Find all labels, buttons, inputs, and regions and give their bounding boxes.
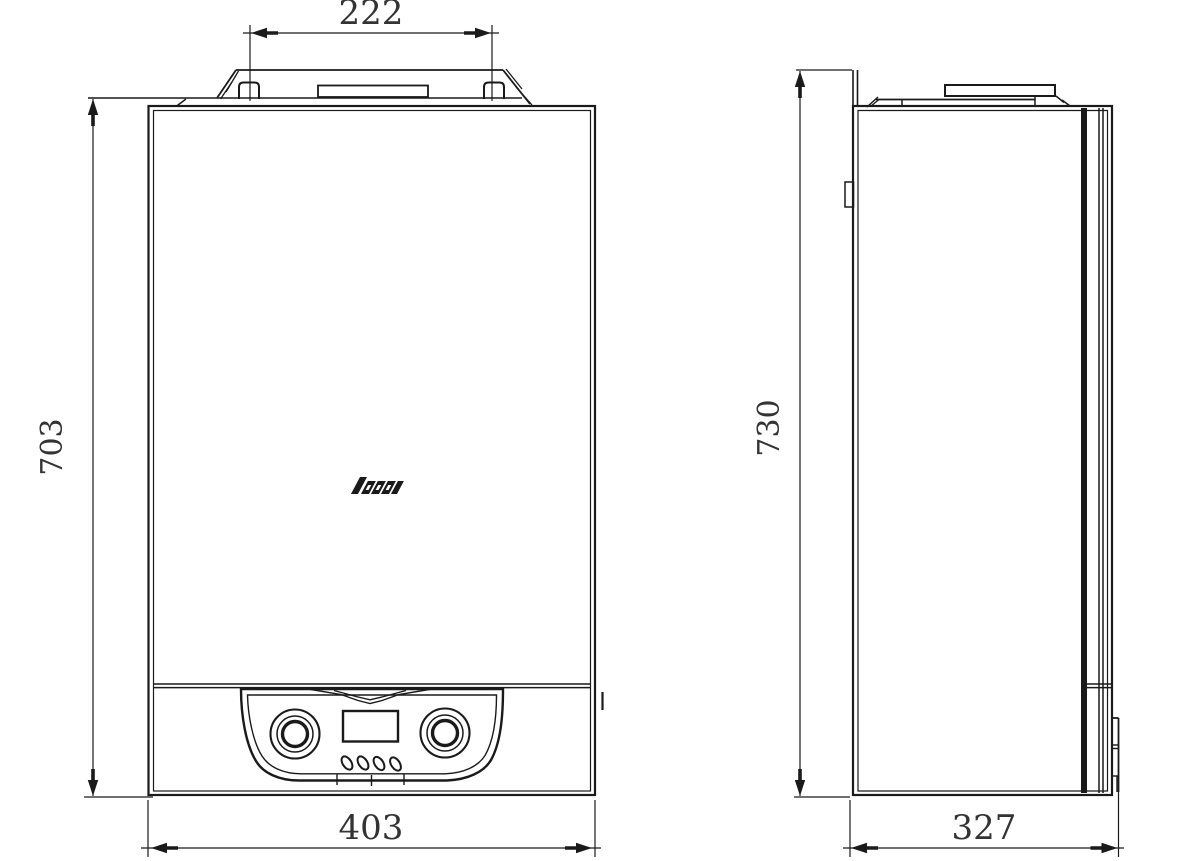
dim-label-side-height: 730 bbox=[752, 399, 787, 456]
front-body bbox=[149, 99, 603, 795]
display-window bbox=[343, 711, 398, 742]
side-top-cap bbox=[867, 85, 1070, 107]
panel-buttons[interactable] bbox=[339, 754, 403, 772]
boiler-dimension-drawing: 222 703 403 730 327 bbox=[0, 0, 1200, 861]
dim-side-depth: 327 bbox=[843, 792, 1124, 857]
dim-side-height: 730 bbox=[752, 70, 852, 797]
dim-label-front-height: 703 bbox=[35, 418, 70, 475]
brand-logo bbox=[351, 477, 406, 494]
right-knob[interactable] bbox=[421, 709, 470, 758]
dim-label-side-depth: 327 bbox=[952, 808, 1017, 848]
dim-front-width: 403 bbox=[141, 800, 601, 857]
side-top-flue-base bbox=[945, 85, 1055, 96]
side-view bbox=[845, 70, 1119, 795]
dim-label-mount-width: 222 bbox=[339, 0, 404, 33]
drawing-canvas: 222 703 403 730 327 bbox=[0, 0, 1200, 861]
front-view bbox=[88, 69, 603, 795]
control-panel-inner-outline bbox=[248, 695, 497, 774]
dim-front-height: 703 bbox=[35, 99, 153, 797]
side-body bbox=[853, 106, 1112, 795]
dim-label-front-width: 403 bbox=[339, 808, 404, 848]
control-panel bbox=[241, 689, 503, 786]
front-mount-tab-left bbox=[239, 83, 259, 100]
front-top-slot bbox=[318, 86, 428, 98]
front-mount-tab-right bbox=[484, 83, 504, 100]
left-knob[interactable] bbox=[271, 710, 320, 759]
front-top-cap bbox=[88, 69, 532, 105]
